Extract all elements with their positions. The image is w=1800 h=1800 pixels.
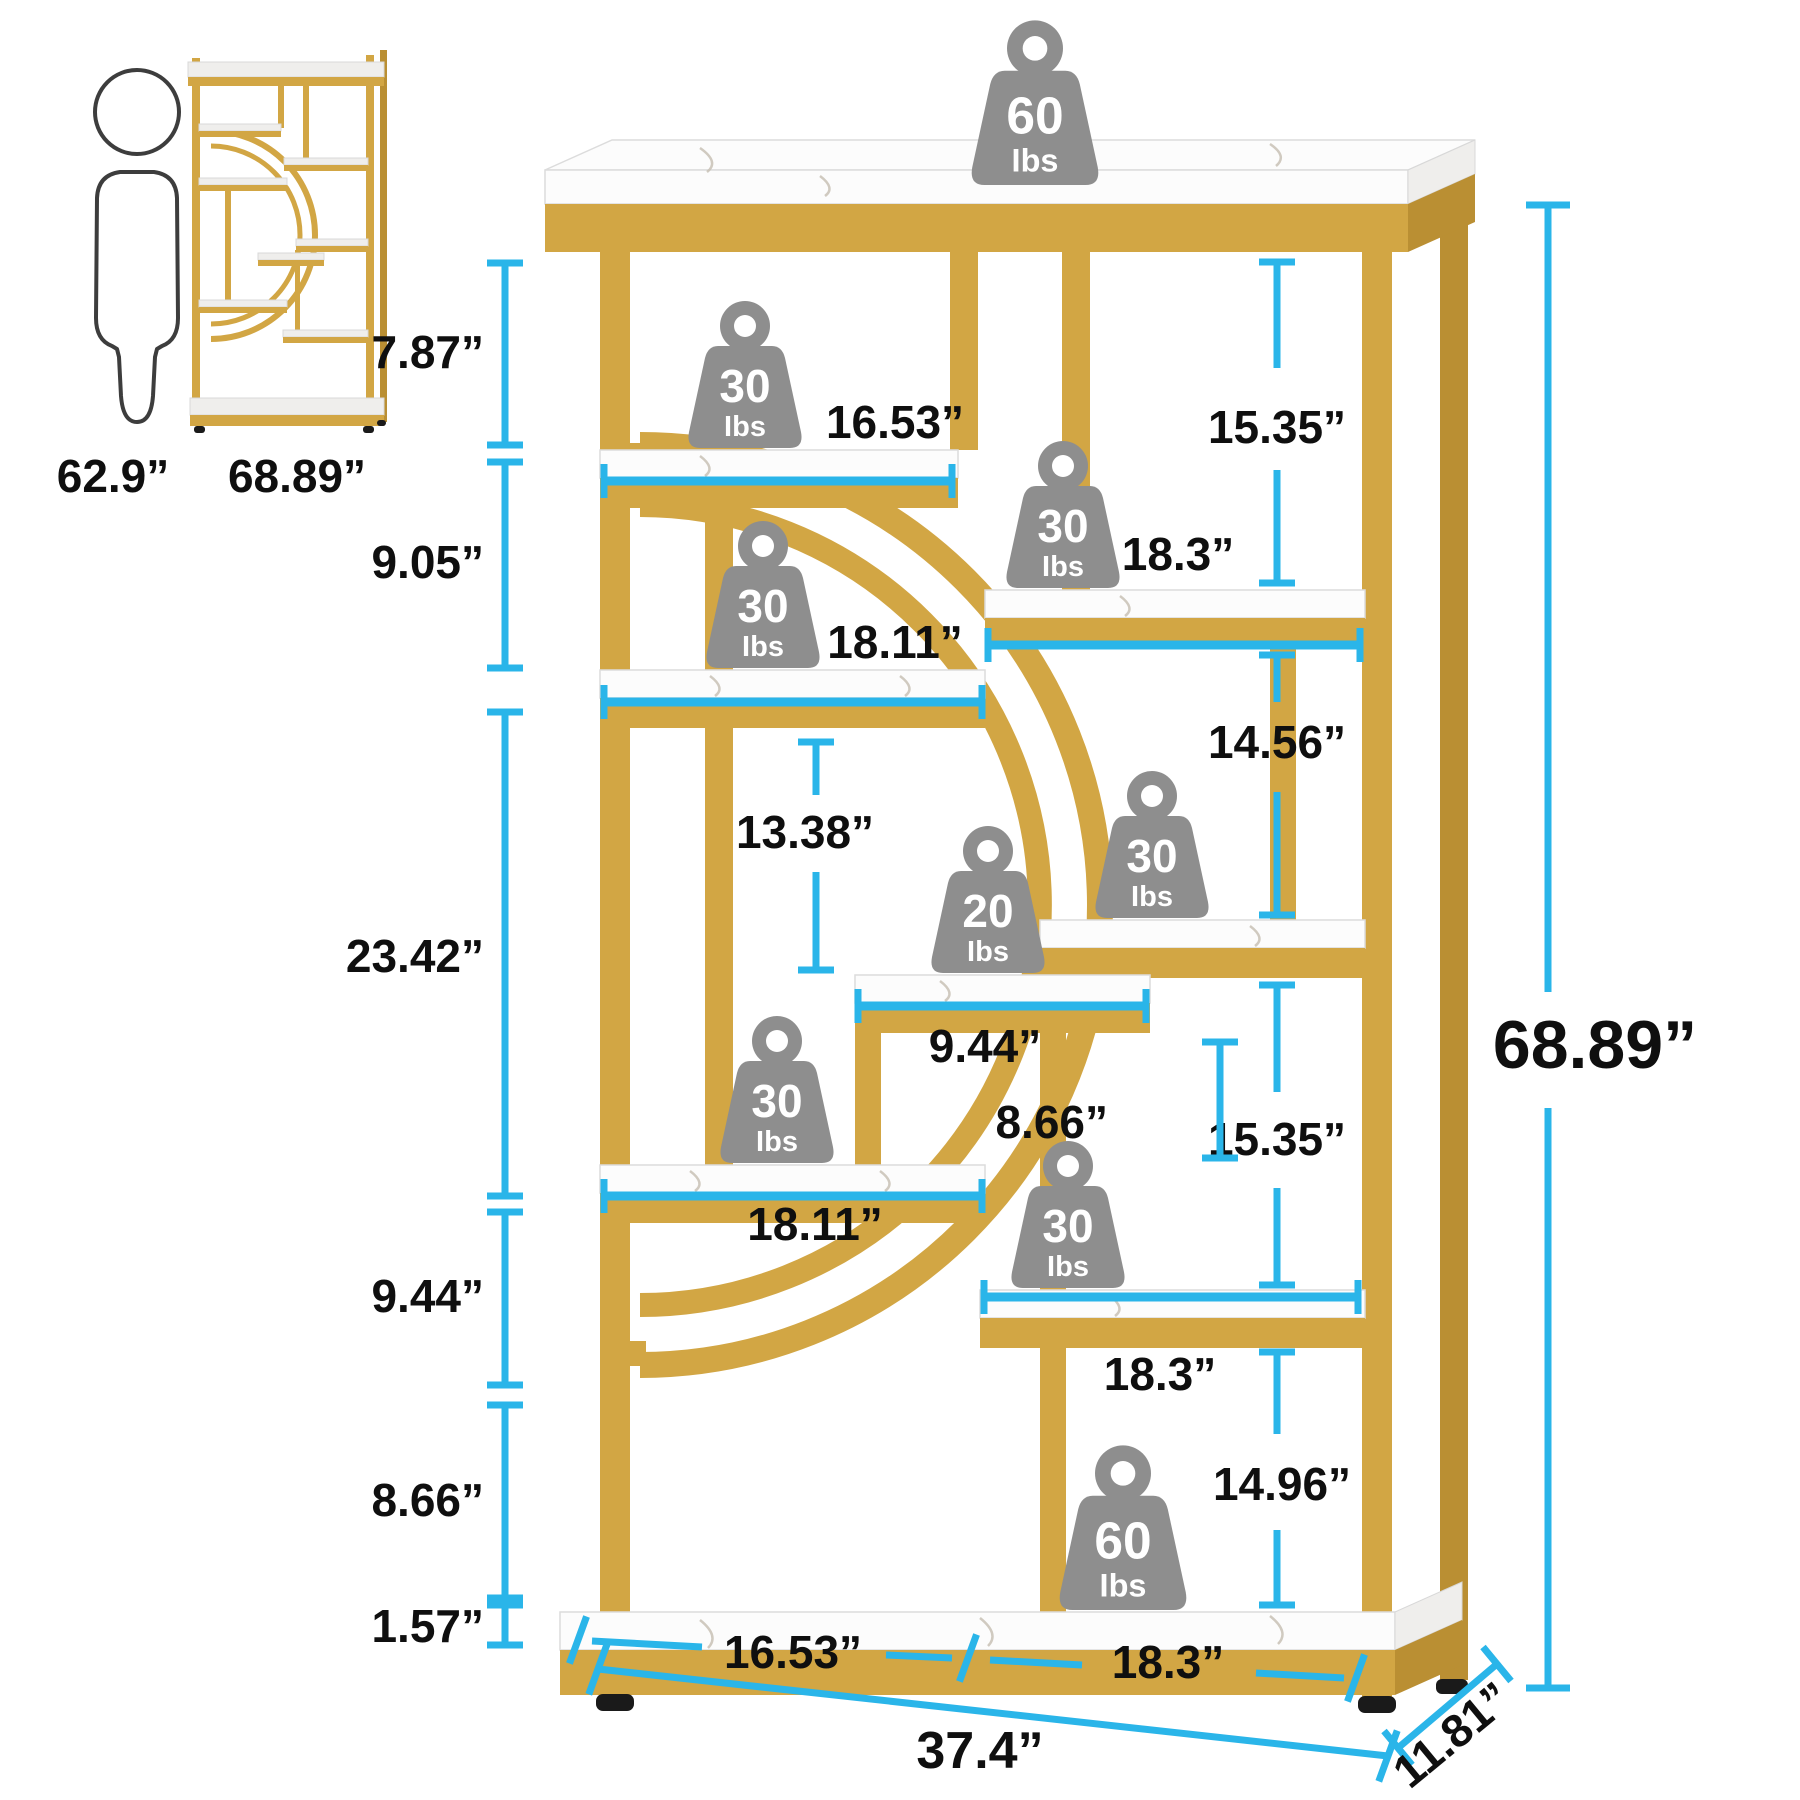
dim-shelf-a-width: 16.53”	[826, 396, 964, 448]
dim-shelf-b-width: 18.3”	[1122, 528, 1235, 580]
svg-text:60: 60	[1094, 1511, 1151, 1569]
dim-left-lower-gap: 9.44”	[371, 1270, 484, 1322]
svg-text:30: 30	[737, 580, 788, 632]
dim-left-large-gap: 23.42”	[346, 930, 484, 982]
svg-text:30: 30	[1042, 1200, 1093, 1252]
dim-shelf-f-width: 18.11”	[747, 1198, 883, 1250]
svg-text:Ibs: Ibs	[1042, 551, 1084, 583]
shelf-b	[985, 590, 1365, 648]
dim-right-gap4: 14.96”	[1213, 1458, 1351, 1510]
svg-text:Ibs: Ibs	[1012, 143, 1059, 179]
svg-text:Ibs: Ibs	[756, 1126, 798, 1158]
weight-badge-top: 60Ibs	[972, 20, 1099, 185]
svg-text:Ibs: Ibs	[967, 936, 1009, 968]
shelf-e	[1040, 920, 1365, 978]
svg-text:30: 30	[1037, 500, 1088, 552]
dim-right-gap2: 14.56”	[1208, 716, 1346, 768]
back-right-post	[1440, 222, 1468, 1680]
product-dimension-diagram: 62.9” 68.89”	[0, 0, 1800, 1800]
svg-text:30: 30	[1126, 830, 1177, 882]
svg-text:Ibs: Ibs	[1131, 881, 1173, 913]
dim-opening-height: 13.38”	[736, 806, 874, 858]
dim-left-foot: 1.57”	[371, 1600, 484, 1652]
dim-shelf-d-width: 9.44”	[929, 1020, 1042, 1072]
dim-shelf-g-width: 18.3”	[1104, 1348, 1217, 1400]
svg-text:Ibs: Ibs	[1047, 1251, 1089, 1283]
dim-opening-height2: 8.66”	[995, 1096, 1108, 1148]
svg-text:20: 20	[962, 885, 1013, 937]
dim-overall-width: 37.4”	[916, 1722, 1043, 1780]
left-dimension-lines	[487, 263, 523, 1645]
dim-right-gap1: 15.35”	[1208, 401, 1346, 453]
thumbnail-height-label: 68.89”	[228, 450, 366, 502]
svg-text:Ibs: Ibs	[742, 631, 784, 663]
weight-badge-bottom: 60Ibs	[1060, 1445, 1187, 1610]
weight-badge-shelf-f: 30Ibs	[720, 1016, 833, 1163]
person-icon	[95, 70, 179, 422]
svg-text:30: 30	[719, 360, 770, 412]
dim-bottom-left-width: 16.53”	[724, 1626, 862, 1678]
overall-height-line	[1526, 205, 1570, 1688]
thumbnail-bookshelf	[188, 50, 387, 433]
svg-text:Ibs: Ibs	[1100, 1568, 1147, 1604]
svg-text:30: 30	[751, 1075, 802, 1127]
svg-text:60: 60	[1006, 86, 1063, 144]
weight-badge-shelf-e: 30Ibs	[1095, 771, 1208, 918]
dim-left-second-gap: 9.05”	[371, 536, 484, 588]
dim-left-lower-gap2: 8.66”	[371, 1474, 484, 1526]
weight-badge-shelf-b: 30Ibs	[1006, 441, 1119, 588]
svg-text:Ibs: Ibs	[724, 411, 766, 443]
person-height-label: 62.9”	[57, 450, 170, 502]
dim-shelf-c-width: 18.11”	[827, 616, 963, 668]
weight-badge-shelf-a: 30Ibs	[688, 301, 801, 448]
dim-overall-height: 68.89”	[1493, 1007, 1697, 1083]
dim-bottom-right-width: 18.3”	[1112, 1636, 1225, 1688]
dim-left-top-gap: 7.87”	[371, 326, 484, 378]
